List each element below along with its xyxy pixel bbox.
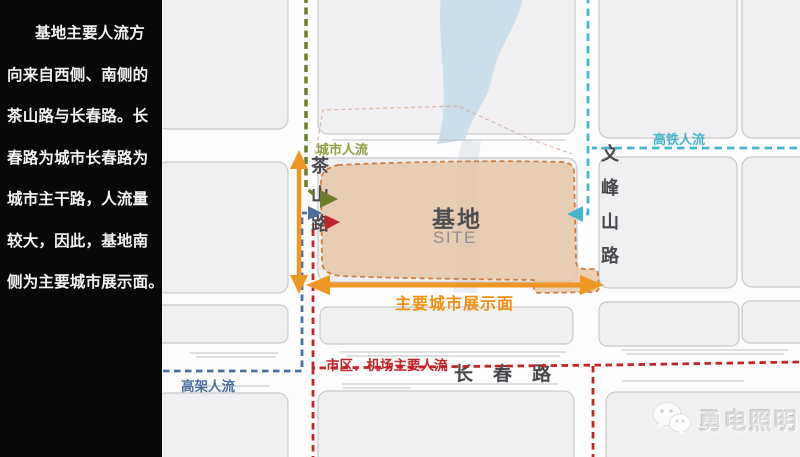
- analysis-text-line: 茶山路与长春路。长: [0, 96, 162, 138]
- rail-flow-label: 高铁人流: [653, 129, 705, 148]
- analysis-text-line: 向来自西侧、南侧的: [0, 55, 162, 97]
- analysis-text-line: 基地主要人流方: [0, 13, 162, 55]
- watermark: 勇电照明: [650, 401, 799, 436]
- urban-airport-flow-label: 市区、机场主要人流: [326, 354, 448, 374]
- analysis-text-line: 春路为城市长春路为: [0, 138, 162, 180]
- watermark-text: 勇电照明: [699, 402, 799, 436]
- analysis-text-panel: 基地主要人流方 向来自西侧、南侧的 茶山路与长春路。长 春路为城市长春路为 城市…: [0, 0, 162, 457]
- site-analysis-slide: 茶山路 文峰山路 长春路 基地 SITE: [0, 0, 800, 457]
- city-flow-label: 城市人流: [316, 139, 368, 158]
- analysis-text-line: 侧为主要城市展示面。: [0, 262, 162, 304]
- analysis-text-line: 城市主干路，人流量: [0, 179, 162, 221]
- analysis-text-line: 较大，因此，基地南: [0, 221, 162, 263]
- rail-flow-line: [567, 0, 797, 222]
- elevated-flow-label: 高架人流: [181, 375, 235, 395]
- wechat-icon: [650, 401, 694, 436]
- city-flow-line: [306, 0, 338, 208]
- display-front-label: 主要城市展示面: [395, 290, 514, 314]
